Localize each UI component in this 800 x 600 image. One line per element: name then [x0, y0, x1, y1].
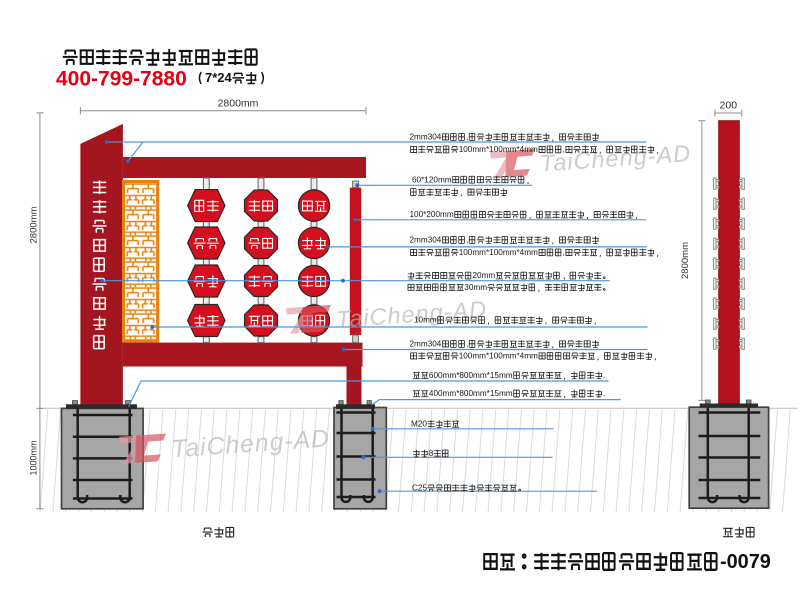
svg-text:2800mm: 2800mm	[29, 206, 40, 243]
svg-text:100mm*100mm*4mm: 100mm*100mm*4mm	[459, 248, 538, 257]
svg-text:100mm*100mm*4mm: 100mm*100mm*4mm	[459, 352, 538, 361]
svg-text:2mm304: 2mm304	[410, 133, 442, 142]
svg-text:100mm*100mm*4mm: 100mm*100mm*4mm	[459, 145, 538, 154]
svg-text:2mm304: 2mm304	[410, 340, 442, 349]
svg-text:-0079: -0079	[720, 551, 771, 573]
svg-text:200: 200	[720, 100, 738, 112]
svg-text:20mm: 20mm	[473, 271, 496, 280]
svg-text:1000mm: 1000mm	[29, 440, 39, 475]
svg-text:8: 8	[429, 449, 434, 458]
svg-text:C25: C25	[412, 484, 427, 493]
svg-text:,: ,	[466, 340, 468, 349]
svg-text:100*200mm: 100*200mm	[410, 210, 454, 219]
svg-text:2800mm: 2800mm	[680, 242, 691, 279]
svg-text:2800mm: 2800mm	[218, 98, 259, 110]
svg-text:,: ,	[466, 133, 468, 142]
svg-text:M20: M20	[411, 420, 427, 429]
svg-text:600mm*800mm*15mm: 600mm*800mm*15mm	[429, 371, 513, 380]
svg-text:,: ,	[563, 145, 565, 154]
svg-text:400mm*800mm*15mm: 400mm*800mm*15mm	[429, 389, 513, 398]
svg-text:.: .	[603, 389, 605, 398]
svg-text:400-799-7880: 400-799-7880	[56, 68, 187, 91]
svg-text:30mm: 30mm	[464, 283, 487, 292]
svg-text:60*120mm: 60*120mm	[412, 175, 452, 184]
svg-text:,: ,	[466, 236, 468, 245]
svg-text:7*24: 7*24	[205, 70, 233, 85]
svg-text:2mm304: 2mm304	[410, 236, 442, 245]
svg-text:.: .	[603, 371, 605, 380]
svg-text:10mm: 10mm	[414, 316, 437, 325]
svg-text:,: ,	[563, 248, 565, 257]
